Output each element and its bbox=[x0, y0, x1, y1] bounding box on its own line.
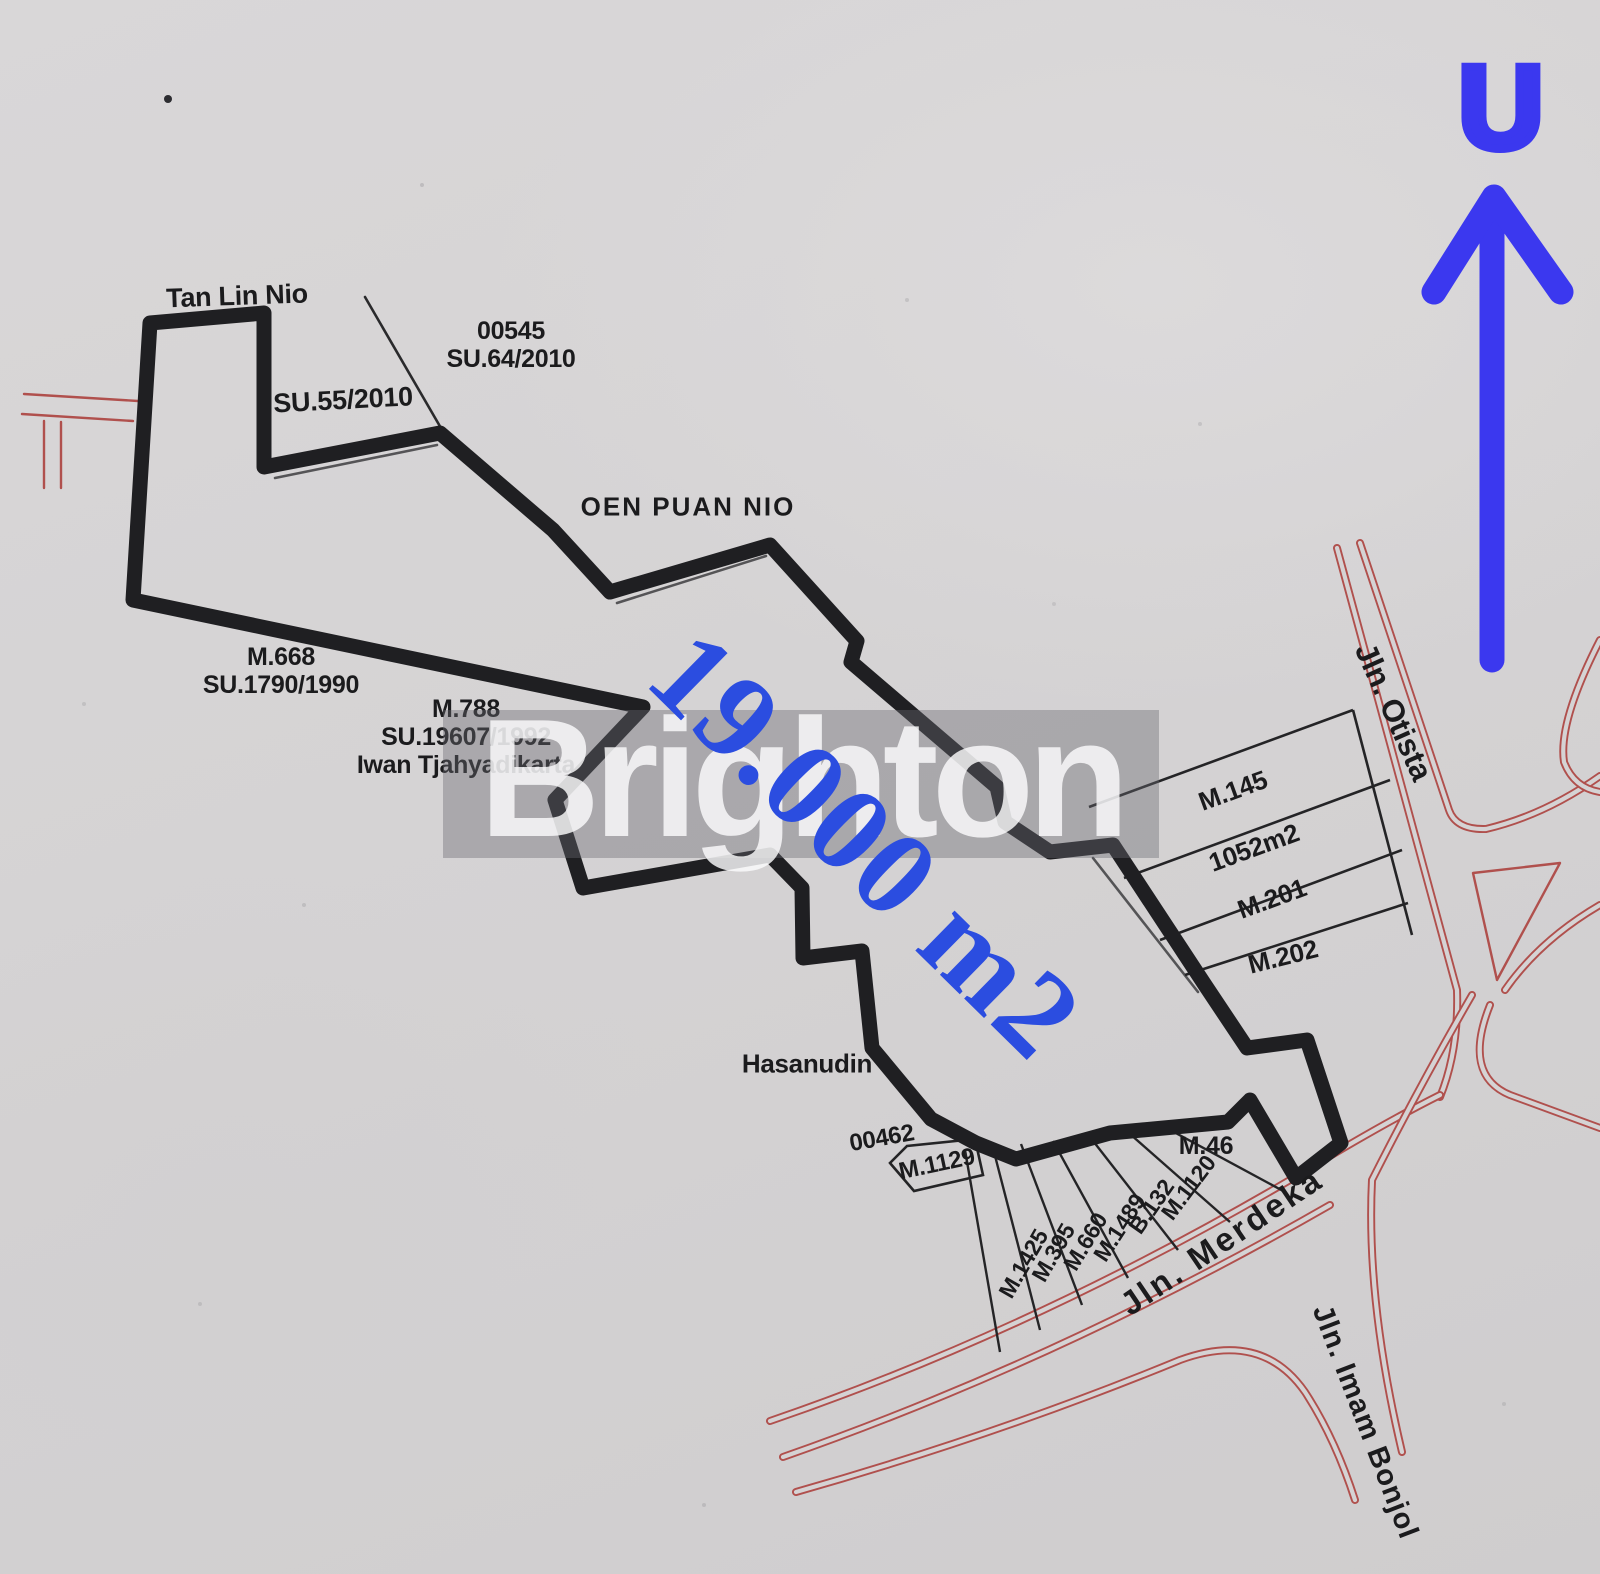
parcel-00545-number: 00545 bbox=[446, 317, 575, 345]
m668-number: M.668 bbox=[203, 643, 359, 671]
parcel-00545-cert: SU.64/2010 bbox=[446, 345, 575, 373]
parcel-label-m668: M.668 SU.1790/1990 bbox=[203, 643, 359, 699]
t-junction-road bbox=[22, 394, 138, 488]
traffic-island-triangle bbox=[1473, 863, 1560, 980]
jln-otista-road bbox=[1337, 543, 1600, 1128]
north-letter-u: U bbox=[1458, 40, 1543, 176]
survey-line-00545 bbox=[365, 297, 445, 435]
owner-label-hasanudin: Hasanudin bbox=[742, 1049, 872, 1078]
parcel-label-00545: 00545 SU.64/2010 bbox=[446, 317, 575, 373]
road-lines bbox=[22, 394, 1600, 1500]
jln-imam-bonjol-road bbox=[1371, 995, 1472, 1452]
m668-cert: SU.1790/1990 bbox=[203, 671, 359, 699]
owner-label-oen-puan-nio: OEN PUAN NIO bbox=[581, 492, 796, 521]
owner-label-tan-lin-nio: Tan Lin Nio bbox=[166, 278, 309, 313]
cadastral-map: Tan Lin Nio 00545 SU.64/2010 SU.55/2010 … bbox=[0, 0, 1600, 1574]
paper-specks bbox=[0, 0, 4, 4]
north-arrow-icon bbox=[1434, 197, 1561, 660]
